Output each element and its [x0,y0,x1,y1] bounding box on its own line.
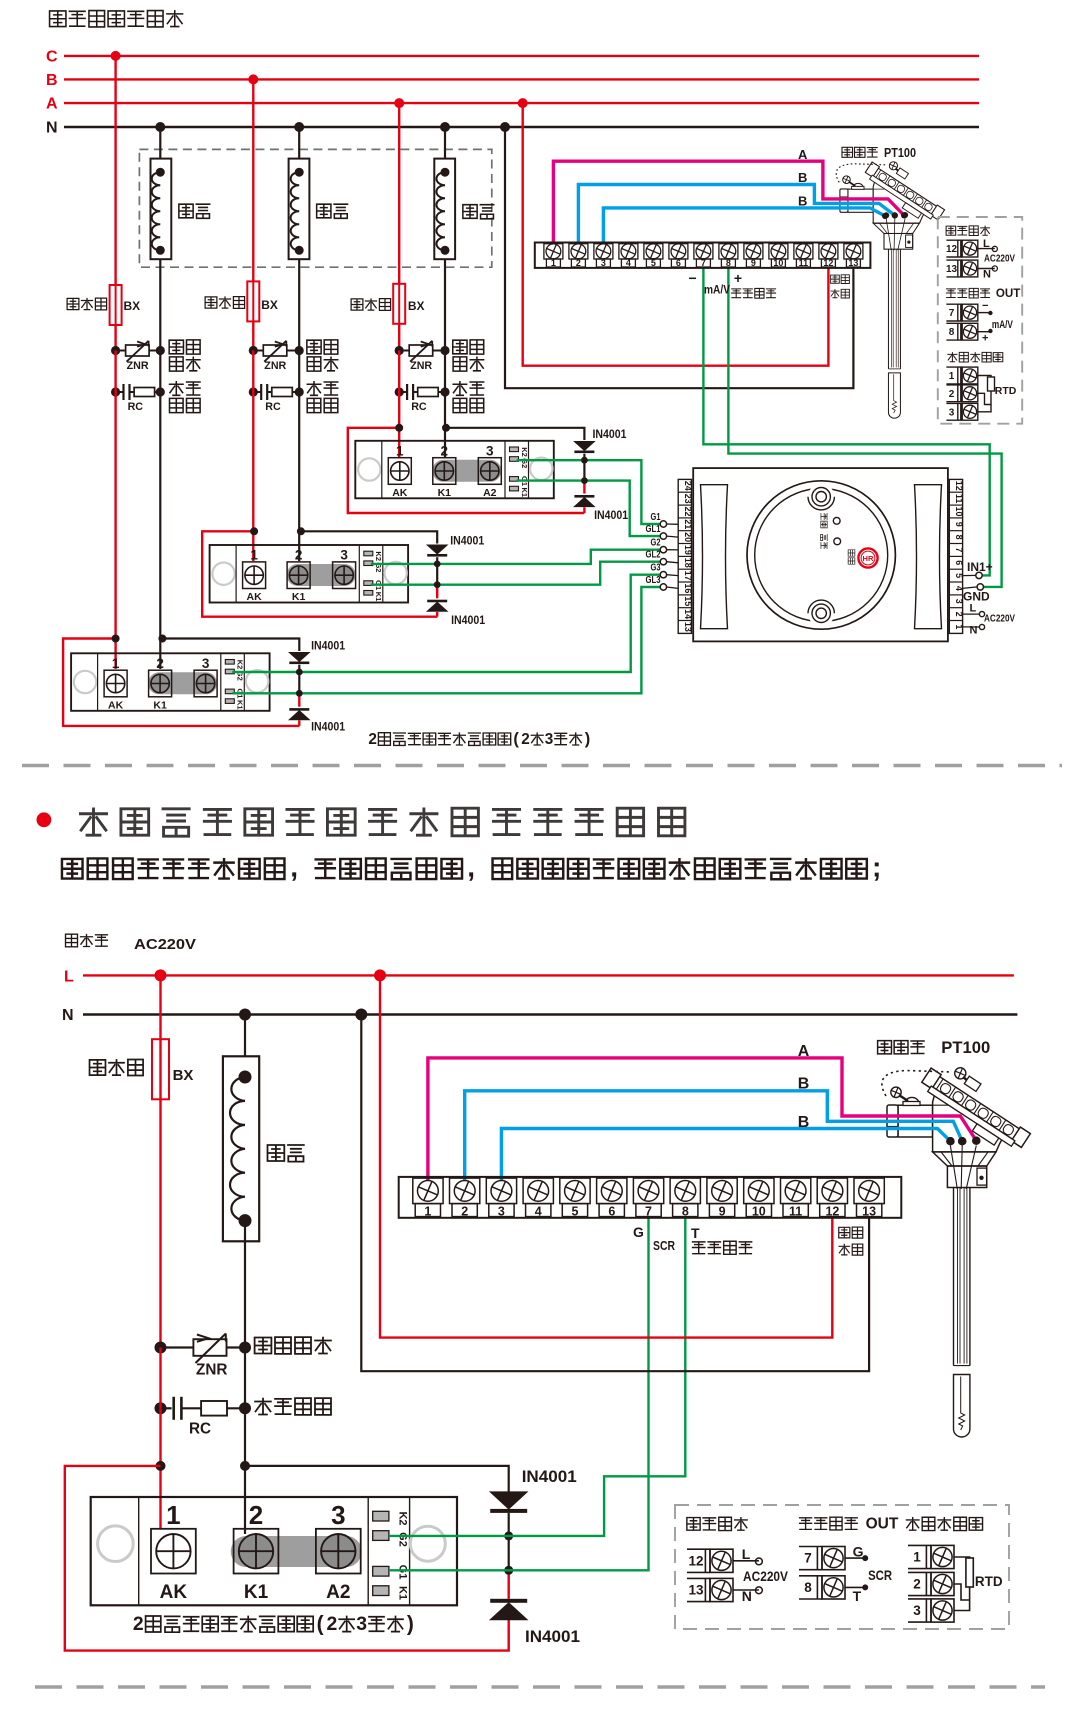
svg-text:15: 15 [683,596,693,606]
svg-text:N: N [62,1007,74,1024]
svg-text:RC: RC [265,401,281,413]
svg-text:IN4001: IN4001 [525,1627,580,1646]
svg-text:10: 10 [954,506,964,516]
svg-text:K2: K2 [236,660,245,670]
svg-text:7: 7 [949,308,955,319]
svg-text:A: A [798,147,808,162]
svg-text:22: 22 [683,506,693,516]
svg-text:6: 6 [676,258,681,268]
svg-text:1: 1 [166,1500,180,1530]
svg-text:G2: G2 [397,1532,409,1547]
svg-text:AK: AK [160,1582,188,1603]
svg-text:23: 23 [683,494,693,504]
svg-text:G1: G1 [397,1565,409,1580]
svg-text:GND: GND [963,590,990,604]
svg-text:N: N [970,625,978,637]
svg-text:3: 3 [340,548,348,563]
svg-text:ZNR: ZNR [410,360,432,372]
svg-text:7: 7 [645,1204,652,1218]
svg-text:B: B [46,72,58,89]
svg-text:20: 20 [683,532,693,542]
svg-text:(: ( [513,730,519,748]
svg-text:12: 12 [946,244,958,255]
svg-text:IN4001: IN4001 [450,534,484,548]
svg-text:8: 8 [949,327,955,338]
svg-text:2: 2 [954,612,964,617]
svg-text:L: L [983,238,990,250]
svg-text:G: G [633,1224,644,1240]
svg-text:K1: K1 [397,1586,409,1600]
svg-text:3: 3 [545,731,554,748]
svg-text:1: 1 [250,548,258,563]
svg-text:K1: K1 [520,488,529,498]
svg-text:ZNR: ZNR [196,1361,227,1378]
svg-text:12: 12 [825,1204,839,1218]
svg-text:BX: BX [261,298,278,312]
svg-text:10: 10 [752,1204,766,1218]
svg-text:PT100: PT100 [941,1038,990,1057]
svg-text:K2: K2 [520,447,529,457]
svg-text:4: 4 [535,1204,542,1218]
svg-text:13: 13 [683,622,693,632]
svg-text:7: 7 [701,258,706,268]
svg-text:1: 1 [551,258,556,268]
svg-text:3: 3 [331,1500,345,1530]
svg-text:IN4001: IN4001 [311,639,345,653]
svg-text:1: 1 [913,1550,921,1565]
svg-text:2: 2 [461,1204,468,1218]
svg-text:−: − [982,300,988,312]
svg-text:9: 9 [751,258,756,268]
svg-text:B: B [798,1076,810,1093]
svg-text:K1: K1 [244,1582,269,1603]
svg-text:6: 6 [608,1204,615,1218]
svg-text:6: 6 [954,560,964,565]
svg-text:5: 5 [572,1204,579,1218]
svg-text:2: 2 [576,258,581,268]
svg-text:RC: RC [189,1420,211,1437]
svg-text:L: L [742,1546,751,1562]
svg-text:A2: A2 [483,487,497,499]
svg-text:K2: K2 [397,1511,409,1525]
svg-text:1: 1 [949,371,955,382]
svg-text:SCR: SCR [868,1567,892,1583]
svg-text:AC220V: AC220V [134,937,196,953]
svg-text:K1: K1 [236,700,245,710]
svg-text:GL3: GL3 [646,574,661,586]
svg-text:3: 3 [949,407,955,418]
svg-text:11: 11 [799,258,809,268]
svg-text:IN4001: IN4001 [451,613,485,627]
svg-text:9: 9 [954,522,964,527]
svg-text:8: 8 [682,1204,689,1218]
svg-text:3: 3 [913,1603,921,1618]
svg-text:AK: AK [108,699,124,711]
svg-text:2: 2 [368,731,377,748]
svg-text:+: + [982,333,988,345]
svg-text:3: 3 [356,1613,367,1635]
svg-text:K2: K2 [374,551,383,561]
svg-text:ZNR: ZNR [264,360,286,372]
svg-text:8: 8 [726,258,731,268]
svg-text:3: 3 [486,443,494,458]
svg-text:3: 3 [202,656,210,671]
svg-text:BX: BX [173,1067,194,1084]
svg-text:AC220V: AC220V [743,1568,789,1584]
svg-text:;: ; [872,851,881,883]
svg-text:T: T [853,1588,862,1604]
svg-text:11: 11 [954,494,964,504]
svg-text:12: 12 [823,258,833,268]
svg-text:IN4001: IN4001 [593,427,627,441]
svg-text:13: 13 [946,264,958,275]
svg-text:−: − [689,270,697,286]
svg-text:OUT: OUT [866,1516,899,1533]
svg-text:AK: AK [247,591,263,603]
svg-text:2: 2 [295,548,303,563]
svg-text:8: 8 [954,535,964,540]
svg-text:IN4001: IN4001 [311,720,345,734]
svg-text:14: 14 [683,609,693,619]
svg-text:A2: A2 [326,1582,350,1603]
svg-text:12: 12 [954,481,964,491]
svg-text:G2: G2 [651,537,661,549]
svg-text:B: B [798,170,807,185]
svg-text:K1: K1 [292,591,306,603]
svg-text:GL2: GL2 [646,549,661,561]
svg-text:K1: K1 [438,487,452,499]
svg-text:2: 2 [156,656,164,671]
svg-text:2: 2 [521,731,530,748]
svg-text:2: 2 [949,389,955,400]
svg-text:N: N [742,1588,752,1604]
svg-text:L: L [64,969,74,986]
svg-text:N: N [983,269,991,281]
svg-text:9: 9 [719,1204,726,1218]
svg-text:2: 2 [327,1613,338,1635]
svg-text:5: 5 [651,258,656,268]
svg-text:): ) [407,1613,414,1636]
svg-text:21: 21 [683,519,693,529]
svg-text:2: 2 [441,443,449,458]
svg-text:3: 3 [601,258,606,268]
svg-text:): ) [585,730,591,748]
svg-text:2: 2 [133,1613,144,1635]
svg-text:HR: HR [863,554,874,563]
svg-text:12: 12 [688,1553,703,1568]
svg-text:RC: RC [128,401,144,413]
svg-text:2: 2 [913,1577,921,1592]
svg-text:GL1: GL1 [646,523,661,535]
svg-text:5: 5 [954,573,964,578]
svg-text:G1: G1 [651,511,661,523]
svg-text:B: B [798,194,807,209]
svg-text:G: G [853,1544,864,1560]
svg-text:B: B [798,1114,810,1131]
svg-text:BX: BX [408,299,425,313]
svg-text:7: 7 [804,1551,812,1566]
svg-text:13: 13 [862,1204,876,1218]
svg-text:ZNR: ZNR [127,360,149,372]
svg-text:PT100: PT100 [884,146,916,160]
svg-text:RTD: RTD [975,1574,1003,1589]
svg-text:1: 1 [112,656,120,671]
svg-text:L: L [970,603,977,615]
svg-text:AC220V: AC220V [984,253,1015,265]
svg-text:11: 11 [789,1204,802,1218]
svg-text:SCR: SCR [653,1238,675,1253]
svg-text:IN4001: IN4001 [522,1467,577,1486]
svg-text:+: + [734,270,742,286]
svg-text:K1: K1 [153,699,167,711]
svg-text:G3: G3 [651,562,661,574]
svg-text:IN1+: IN1+ [967,560,993,574]
svg-text:A: A [46,96,58,113]
svg-text:8: 8 [804,1580,812,1595]
svg-text:4: 4 [626,258,631,268]
svg-text:(: ( [317,1613,324,1636]
svg-text:RTD: RTD [995,385,1017,397]
svg-text:18: 18 [683,558,693,568]
svg-text:17: 17 [683,571,693,581]
svg-text:RC: RC [411,401,427,413]
svg-text:3: 3 [498,1204,505,1218]
svg-text:19: 19 [683,545,693,555]
svg-text:2: 2 [249,1500,263,1530]
svg-text:AK: AK [392,487,408,499]
svg-text:mA/V: mA/V [704,283,730,297]
svg-text:BX: BX [124,299,141,313]
svg-text:IN4001: IN4001 [594,508,628,522]
svg-text:mA/V: mA/V [992,319,1013,331]
svg-text:N: N [46,120,58,137]
svg-text:AC220V: AC220V [984,613,1015,625]
svg-text:,: , [290,851,298,883]
svg-text:1: 1 [424,1204,431,1218]
svg-text:K1: K1 [374,592,383,602]
svg-text:10: 10 [773,258,783,268]
svg-text:24: 24 [683,481,693,491]
svg-text:,: , [467,851,475,883]
svg-text:OUT: OUT [996,287,1020,300]
svg-text:T: T [691,1225,700,1241]
svg-text:13: 13 [688,1583,704,1598]
svg-text:7: 7 [954,547,964,552]
svg-text:1: 1 [396,443,404,458]
svg-text:C: C [46,48,58,65]
svg-text:13: 13 [848,258,858,268]
svg-text:16: 16 [683,583,693,593]
svg-text:A: A [798,1043,810,1060]
svg-text:1: 1 [954,624,964,629]
